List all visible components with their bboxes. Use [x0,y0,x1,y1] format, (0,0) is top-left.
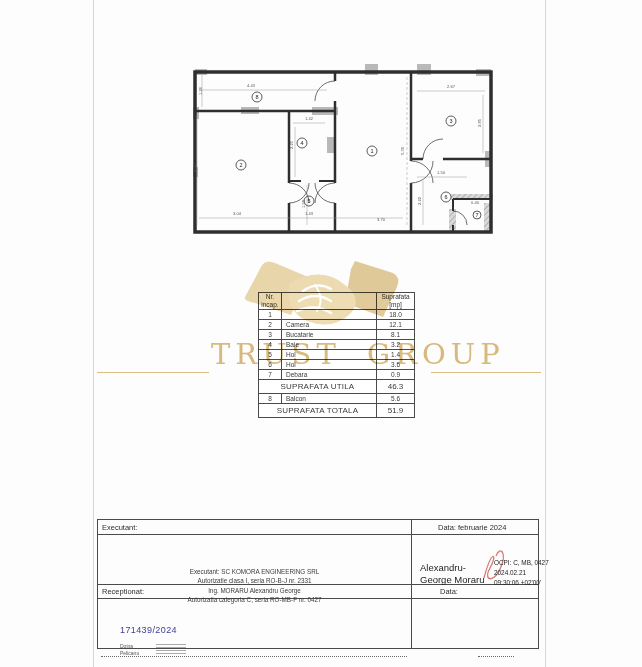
dimension-label: 1.50 [301,199,306,208]
room-number: 8 [255,94,258,100]
stamp-meta-line [156,647,186,648]
suprafata-utila-row: SUPRAFATA UTILA 46.3 [259,379,415,393]
dimension-label: 4.43 [247,83,256,88]
suprafata-totala-value: 51.9 [377,403,415,417]
header-suprafata: Suprafata [mp] [377,293,415,310]
table-row: 4Baie3.2 [259,339,415,349]
room-number: 6 [444,194,447,200]
stamp-meta-line [156,644,186,645]
stamp-name: Doina Pelicanu [120,643,139,656]
room-number: 1 [370,148,373,154]
balcon-name: Balcon [282,393,377,403]
walls [195,72,491,232]
table-row: 5Hol1.4 [259,349,415,359]
dimension-label: 1.50 [437,170,446,175]
plan-labels: 123456784.431.262.672.851.422.255.304.05… [192,83,482,222]
room-area-table: Nr. incap. Suprafata [mp] 118.02Camera12… [258,292,415,418]
ocpi-lines: OCPI: C, MB, 04272024.02.2109:30:06 +02'… [494,558,564,588]
suprafata-totala-row: SUPRAFATA TOTALA 51.9 [259,403,415,417]
dimension-label: 5.30 [400,146,405,155]
dimension-label: 0.40 [471,200,480,205]
suprafata-totala-label: SUPRAFATA TOTALA [259,403,377,417]
dimension-label: 4.05 [192,163,197,172]
dimension-label: 2.67 [447,84,456,89]
footer-cartouche: Executant: Data: februarie 2024 Receptio… [97,519,539,649]
dimension-label: 1.26 [198,86,203,95]
door-arcs [289,81,467,225]
table-row: 3Bucatarie8.1 [259,329,415,339]
dimension-label: 2.22 [417,196,422,205]
dimension-label: 3.04 [233,211,242,216]
dotted-line-left [101,656,407,657]
stamp-meta-line [156,650,186,651]
table-row: 118.0 [259,309,415,319]
balcon-nr: 8 [259,393,282,403]
watermark-rule-right [431,372,541,373]
header-room [282,293,377,310]
executant-header: Executant: [102,523,137,532]
table-row: 2Camera12.1 [259,319,415,329]
room-number: 4 [300,140,303,146]
watermark-rule-left [97,372,209,373]
header-nr: Nr. incap. [259,293,282,310]
data-header-2: Data: [440,587,458,596]
room-number: 2 [239,162,242,168]
dimension-label: 2.85 [477,118,482,127]
suprafata-utila-label: SUPRAFATA UTILA [259,379,377,393]
dimension-label: 1.43 [305,211,314,216]
dimension-lines [197,75,485,225]
suprafata-utila-value: 46.3 [377,379,415,393]
dimension-label: 3.70 [377,217,386,222]
dotted-line-right [478,656,514,657]
table-row: 7Debara0.9 [259,369,415,379]
table-row: 6Hol3.6 [259,359,415,369]
page-left-edge [93,0,94,667]
room-number: 7 [475,212,478,218]
room-number: 5 [307,198,310,204]
floor-plan: 123456784.431.262.672.851.422.255.304.05… [189,63,499,241]
table-header-row: Nr. incap. Suprafata [mp] [259,293,415,310]
dimension-label: 1.42 [305,116,314,121]
room-number: 3 [449,118,452,124]
data-header: Data: februarie 2024 [438,523,506,532]
stamp-meta-line [156,653,186,654]
area-table-body: 118.02Camera12.13Bucatarie8.14Baie3.25Ho… [259,309,415,379]
scanned-document-page: 123456784.431.262.672.851.422.255.304.05… [0,0,642,667]
registration-number: 171439/2024 [120,625,177,635]
executant-lines: Executant: SC KOMORA ENGINEERING SRLAuto… [98,567,411,605]
balcon-value: 5.6 [377,393,415,403]
dimension-label: 2.25 [289,140,294,149]
balcon-row: 8 Balcon 5.6 [259,393,415,403]
